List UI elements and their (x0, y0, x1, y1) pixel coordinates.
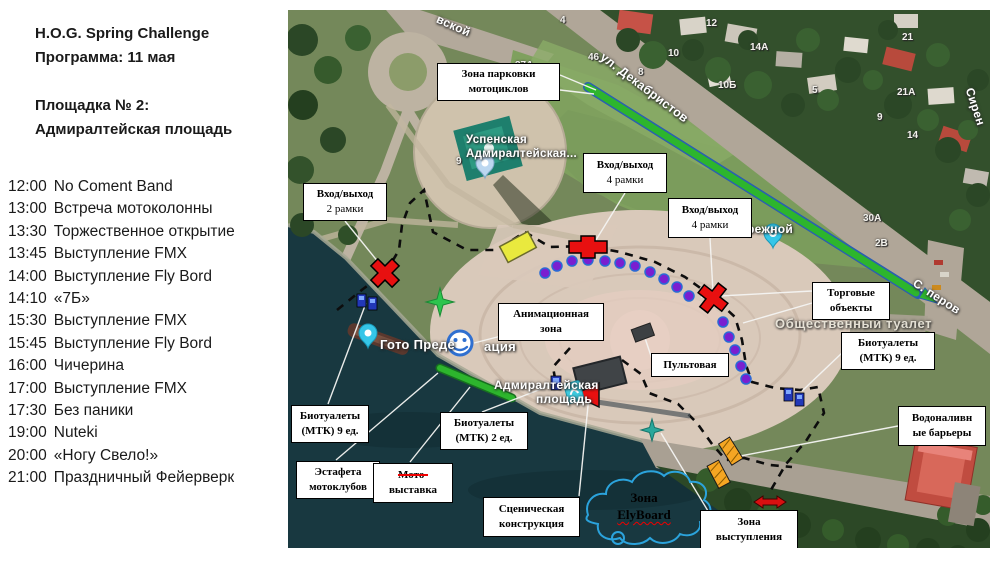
church-name-line2: Адмиралтейская... (466, 148, 577, 160)
schedule-item: 21:00Праздничный Фейерверк (8, 467, 235, 489)
schedule-item: 20:00«Ногу Свело!» (8, 445, 235, 467)
house-number: 5 (812, 85, 818, 96)
house-number: 12 (706, 18, 717, 29)
program-panel: H.O.G. Spring Challenge Программа: 11 ма… (0, 0, 288, 563)
schedule-item: 17:30Без паники (8, 400, 235, 422)
house-number: 10 (668, 48, 679, 59)
map-label-biotoilets-9-right: Биотуалеты(МТК) 9 ед. (841, 332, 935, 370)
map-label-entry-4b: Вход/выход4 рамки (668, 198, 752, 238)
schedule-item: 15:30Выступление FMX (8, 310, 235, 332)
satellite-map: ул. Декабристов вской Успенская Адмиралт… (288, 10, 990, 548)
venue-name: Адмиралтейская площадь (35, 118, 232, 142)
schedule-item: 19:00Nuteki (8, 422, 235, 444)
house-number: 4 (560, 15, 566, 26)
event-map-poster: { "header": { "line1": "H.O.G. Spring Ch… (0, 0, 1000, 563)
house-number: 21А (897, 87, 915, 98)
square-name-line2: площадь (536, 392, 592, 406)
flyboard-zone-text: Зона ElyBoard (600, 489, 688, 523)
house-number: 30А (863, 213, 881, 224)
map-label-parking: Зона парковкимотоциклов (437, 63, 560, 101)
house-number: 2В (875, 238, 888, 249)
program-header: H.O.G. Spring Challenge Программа: 11 ма… (35, 22, 232, 142)
map-label-performance-zone: Зонавыступления (700, 510, 798, 548)
ship-name-part1: Гото Преде (380, 337, 455, 352)
map-label-entry-2: Вход/выход2 рамки (303, 183, 387, 221)
schedule-item: 14:10«7Б» (8, 288, 235, 310)
ship-name-part2: ация (484, 339, 516, 354)
church-name-line1: Успенская (466, 134, 527, 146)
schedule-list: 12:00No Coment Band 13:00Встреча мотокол… (8, 176, 235, 490)
schedule-item: 14:00Выступление Fly Bord (8, 266, 235, 288)
house-number: 9 (456, 156, 462, 167)
map-label-biotoilets-9-left: Биотуалеты(МТК) 9 ед. (291, 405, 369, 443)
schedule-item: 13:00Встреча мотоколонны (8, 198, 235, 220)
venue-number: Площадка № 2: (35, 94, 232, 118)
schedule-item: 15:45Выступление Fly Bord (8, 333, 235, 355)
schedule-item: 12:00No Coment Band (8, 176, 235, 198)
program-date: Программа: 11 мая (35, 46, 232, 70)
house-number: 14 (907, 130, 918, 141)
map-label-animation-zone: Анимационнаязона (498, 303, 604, 341)
house-number: 10Б (718, 80, 736, 91)
map-label-control-room: Пультовая (651, 353, 729, 377)
map-label-trade-objects: Торговыеобъекты (812, 282, 890, 320)
schedule-item: 13:45Выступление FMX (8, 243, 235, 265)
schedule-item: 17:00Выступление FMX (8, 378, 235, 400)
event-title: H.O.G. Spring Challenge (35, 22, 232, 46)
square-name-line1: Адмиралтейская (494, 378, 599, 392)
house-number: 21 (902, 32, 913, 43)
schedule-item: 16:00Чичерина (8, 355, 235, 377)
house-number: 14А (750, 42, 768, 53)
house-number: 9 (877, 112, 883, 123)
map-label-biotoilets-2: Биотуалеты(МТК) 2 ед. (440, 412, 528, 450)
map-label-water-barriers: Водоналивные барьеры (898, 406, 986, 446)
schedule-item: 13:30Торжественное открытие (8, 221, 235, 243)
map-label-relay: Эстафетамотоклубов (296, 461, 380, 499)
map-label-entry-4a: Вход/выход4 рамки (583, 153, 667, 193)
map-label-stage-structure: Сценическаяконструкция (483, 497, 580, 537)
map-label-moto-exhibition: Мото-выставка (373, 463, 453, 503)
